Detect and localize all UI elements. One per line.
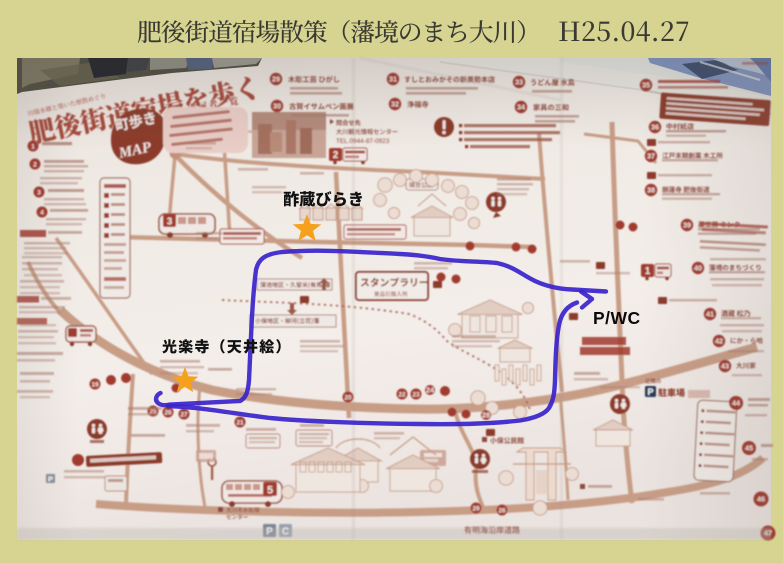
- svg-text:2: 2: [333, 150, 339, 161]
- svg-text:26: 26: [164, 409, 172, 416]
- svg-text:23: 23: [412, 391, 420, 398]
- svg-text:24: 24: [426, 386, 434, 395]
- svg-text:21: 21: [236, 419, 244, 426]
- svg-text:20: 20: [344, 394, 352, 401]
- svg-text:29: 29: [472, 505, 480, 512]
- svg-text:22: 22: [398, 391, 406, 398]
- svg-text:26: 26: [498, 507, 506, 514]
- svg-text:27: 27: [180, 411, 188, 418]
- svg-text:P/WC: P/WC: [593, 308, 641, 328]
- svg-text:28: 28: [482, 411, 490, 420]
- svg-text:19: 19: [91, 381, 99, 388]
- svg-text:3: 3: [167, 217, 173, 228]
